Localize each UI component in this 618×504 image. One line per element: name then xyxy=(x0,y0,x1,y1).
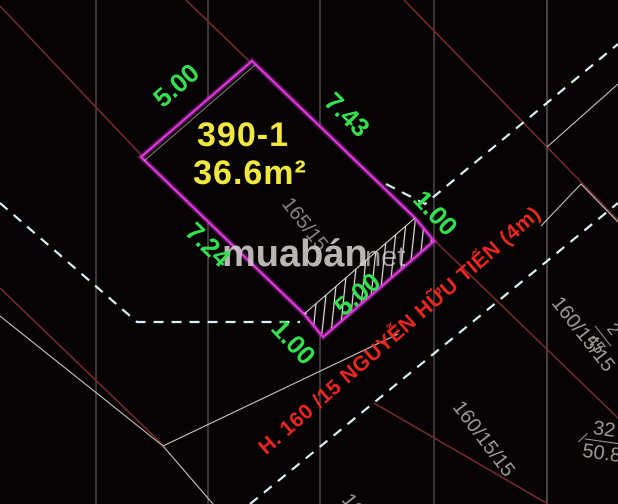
neighbor-bottom-area: 50.8 xyxy=(581,440,618,467)
neighbor-parcel-right-label: 160/15/15 2 45 xyxy=(547,293,618,377)
maroon-boundary-line xyxy=(0,6,146,160)
parcel-corner-line xyxy=(541,184,618,226)
cadastral-map: 165/15 muabán .net 5.00 7.43 7.24 5.00 1… xyxy=(0,0,618,504)
neighbor-partial-label: 160 xyxy=(337,490,375,504)
dim-label-5.00-top: 5.00 xyxy=(147,57,205,113)
neighbor-bottom-path: 160/15/15 xyxy=(448,397,519,481)
plot-area: 36.6m² xyxy=(193,154,307,192)
maroon-boundary-line xyxy=(404,0,618,220)
parcel-boundary-line xyxy=(163,446,213,504)
map-canvas: 165/15 muabán .net 5.00 7.43 7.24 5.00 1… xyxy=(0,0,618,504)
neighbor-right-lot: 2 xyxy=(603,320,618,339)
parcel-boundary-line xyxy=(0,316,163,446)
plot-number: 390-1 xyxy=(197,116,289,154)
neighbor-parcel-bottom-label: 160/15/15 32 50.8 xyxy=(448,397,618,481)
watermark-brand: muabán xyxy=(222,233,368,275)
neighbor-bottom-lot: 32 xyxy=(592,417,617,442)
road-dashed-line-upper-right xyxy=(386,44,618,204)
maroon-boundary-line xyxy=(0,288,163,445)
